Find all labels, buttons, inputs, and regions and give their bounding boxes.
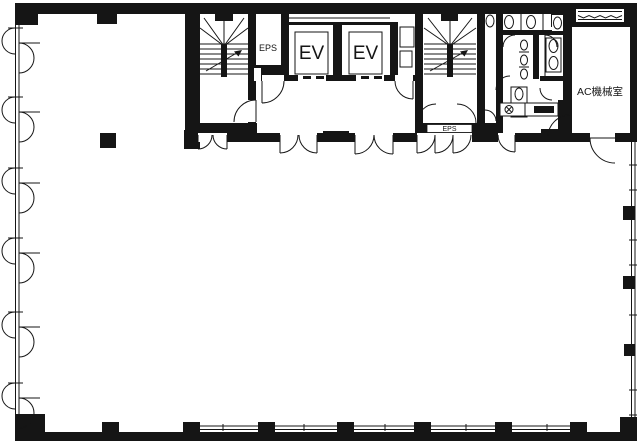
ac-machine-room-label: AC機械室 [577, 85, 623, 98]
stairwell-left [200, 15, 256, 122]
eps-shaft-lower: EPS [427, 125, 472, 134]
elevator-left-label: EV [299, 43, 325, 64]
urinal-icon [521, 55, 528, 65]
floor-plan-drawing: EPS EV EV EPS [0, 0, 640, 447]
pipe-space [400, 27, 414, 67]
toilet-icon [486, 15, 494, 27]
window-pair [2, 168, 40, 213]
eps-shaft-upper: EPS [259, 43, 277, 53]
window-pair [2, 97, 40, 142]
toilet-icon [527, 16, 536, 29]
window-pair [2, 238, 40, 283]
left-wall-windows [2, 28, 40, 428]
toilet-icon [515, 88, 523, 100]
urinal-icon [521, 69, 528, 79]
window-pair [2, 312, 40, 357]
urinal-icon [521, 40, 528, 50]
elevator-hall-doors [262, 81, 413, 103]
stairwell-right [417, 15, 476, 123]
eps-upper-label: EPS [259, 43, 277, 53]
toilet-icon [505, 16, 514, 29]
louver-vent [576, 9, 624, 22]
eps-lower-label: EPS [442, 126, 456, 133]
toilet-icon [554, 17, 562, 29]
toilet-icon [549, 57, 558, 70]
floor-plan: EPS EV EV EPS [0, 0, 640, 447]
window-pair [2, 28, 40, 73]
elevator-right-label: EV [353, 43, 379, 64]
right-wall-window-ticks [629, 165, 637, 415]
sink-counter [500, 103, 558, 116]
